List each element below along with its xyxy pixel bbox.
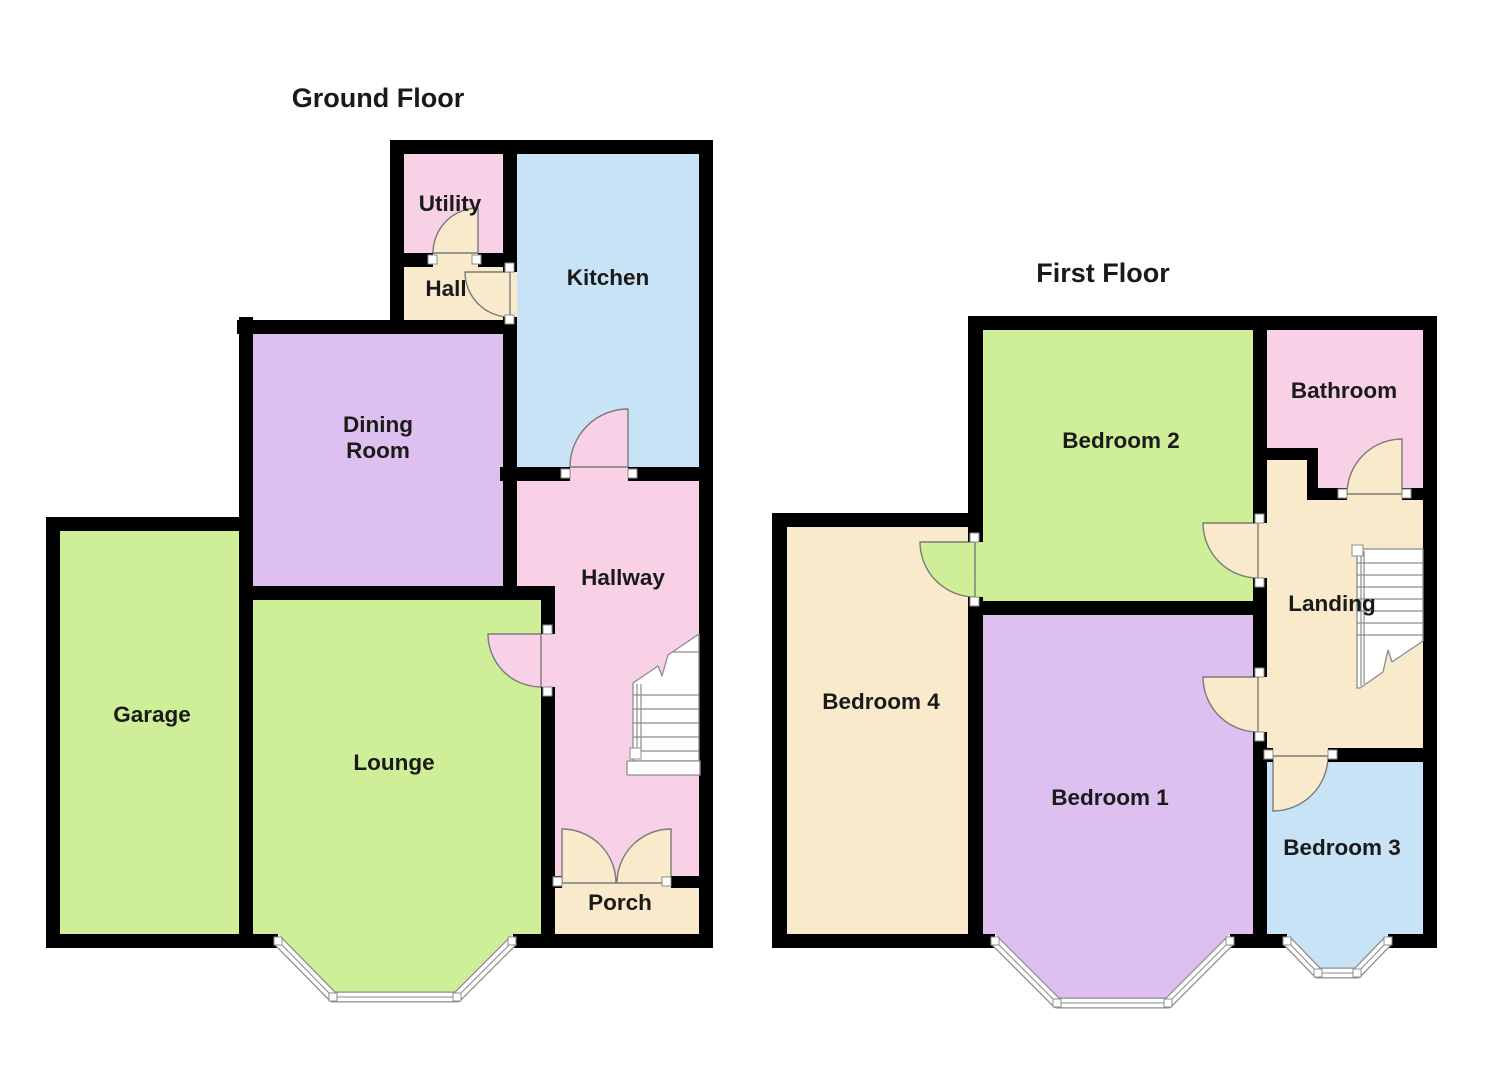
door-jamb <box>561 469 570 478</box>
window-joint <box>1314 969 1322 977</box>
stair-bottom-step <box>627 761 700 775</box>
room-label-bedroom-4: Bedroom 4 <box>822 689 940 714</box>
wall-segment <box>1253 316 1267 523</box>
wall-segment <box>1307 448 1318 500</box>
window-joint <box>1283 937 1291 945</box>
room-label-landing: Landing <box>1288 591 1375 616</box>
door-gap <box>541 634 555 687</box>
room-bedroom-1-bay-floor <box>995 934 1230 1002</box>
wall-segment <box>1328 748 1437 762</box>
wall-segment <box>503 317 517 600</box>
door-jamb <box>1264 750 1273 759</box>
room-label-porch: Porch <box>588 890 652 915</box>
door-jamb <box>428 255 437 264</box>
door-jamb <box>662 877 671 886</box>
wall-segment <box>503 140 517 272</box>
room-label-bathroom: Bathroom <box>1291 378 1397 403</box>
wall-segment <box>1253 578 1267 677</box>
window-joint <box>453 993 461 1001</box>
room-label-hall: Hall <box>425 276 466 301</box>
door-jamb <box>1255 514 1264 523</box>
door-jamb <box>472 255 481 264</box>
room-label-hallway: Hallway <box>581 565 665 590</box>
stair-newel <box>1352 545 1363 556</box>
stair-newel <box>630 748 641 759</box>
door-gap <box>433 253 478 267</box>
door-jamb <box>505 263 514 272</box>
room-garage <box>60 531 239 934</box>
wall-segment <box>968 597 983 948</box>
door-jamb <box>1255 668 1264 677</box>
window-joint <box>991 937 999 945</box>
wall-segment <box>239 317 253 948</box>
door-jamb <box>553 877 562 886</box>
first-floor-plan: First Floor Bedroom 2 Bathroom Landing B… <box>772 258 1437 1007</box>
room-label-utility: Utility <box>419 191 482 216</box>
ground-floor-title: Ground Floor <box>292 83 465 113</box>
room-label-bedroom-3: Bedroom 3 <box>1283 835 1401 860</box>
wall-segment <box>237 320 517 334</box>
floorplan-canvas: Ground Floor Utility Hall Kitchen Dining… <box>0 0 1485 1080</box>
room-label-garage: Garage <box>113 702 191 727</box>
wall-segment <box>541 687 555 948</box>
door-jamb <box>1338 489 1347 498</box>
room-bedroom-1 <box>983 615 1253 934</box>
door-jamb <box>970 597 979 606</box>
room-bedroom-2 <box>983 330 1253 601</box>
door-jamb <box>1255 578 1264 587</box>
room-label-dining-line1: Dining <box>343 412 413 437</box>
room-label-bedroom-1: Bedroom 1 <box>1051 785 1169 810</box>
window-joint <box>508 937 516 945</box>
window-joint <box>1164 999 1172 1007</box>
door-jamb <box>1255 732 1264 741</box>
door-jamb <box>543 625 552 634</box>
room-bedroom-4 <box>787 527 968 934</box>
wall-segment <box>390 140 713 154</box>
wall-segment <box>1253 732 1267 948</box>
window-joint <box>329 993 337 1001</box>
door-jamb <box>970 533 979 542</box>
window-joint <box>1384 937 1392 945</box>
wall-segment <box>1423 316 1437 948</box>
wall-segment <box>772 934 995 948</box>
room-lounge-bay-floor <box>278 934 513 996</box>
window-joint <box>1053 999 1061 1007</box>
window-joint <box>1226 937 1234 945</box>
door-jamb <box>1402 489 1411 498</box>
window-joint <box>1353 969 1361 977</box>
room-label-dining-line2: Room <box>346 438 410 463</box>
wall-segment <box>390 140 404 334</box>
door-jamb <box>628 469 637 478</box>
room-label-lounge: Lounge <box>353 750 434 775</box>
wall-segment <box>772 513 787 948</box>
wall-segment <box>968 316 983 542</box>
door-jamb <box>1328 750 1337 759</box>
wall-segment <box>968 316 1437 330</box>
first-floor-title: First Floor <box>1036 258 1170 288</box>
wall-segment <box>671 876 699 888</box>
room-label-kitchen: Kitchen <box>567 265 650 290</box>
wall-segment <box>983 601 1267 615</box>
floorplan-drawing: Ground Floor Utility Hall Kitchen Dining… <box>0 0 1485 1080</box>
wall-segment <box>46 517 60 948</box>
wall-segment <box>772 513 983 527</box>
wall-segment <box>699 140 713 948</box>
window-joint <box>274 937 282 945</box>
room-label-bedroom-2: Bedroom 2 <box>1062 428 1180 453</box>
ground-floor-plan: Ground Floor Utility Hall Kitchen Dining… <box>46 83 713 1001</box>
wall-segment <box>46 517 253 531</box>
door-jamb <box>543 687 552 696</box>
door-gap <box>570 467 628 481</box>
door-jamb <box>505 315 514 324</box>
